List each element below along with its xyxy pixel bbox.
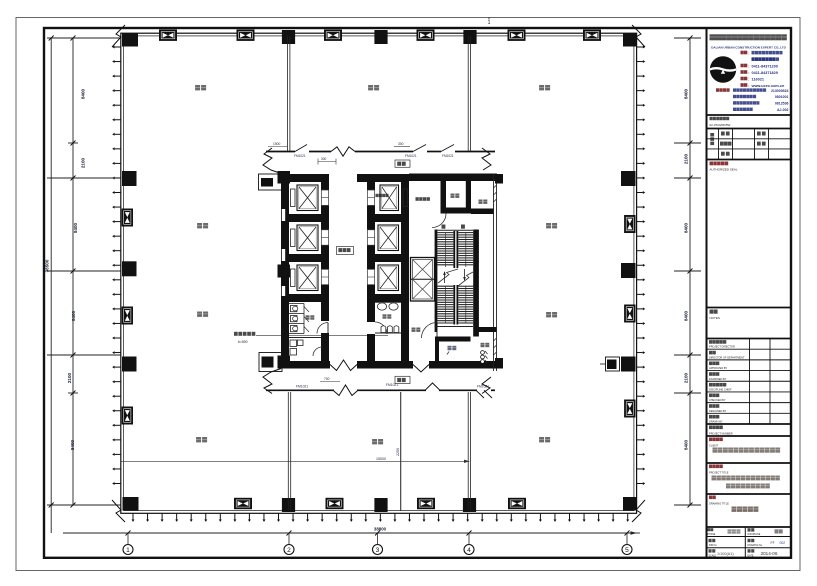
- svg-text:0411-84371200: 0411-84371200: [752, 65, 778, 69]
- svg-text::: :: [748, 65, 749, 69]
- svg-text:DESIGNED BY: DESIGNED BY: [709, 409, 727, 413]
- svg-text:5: 5: [625, 547, 629, 554]
- svg-text:300: 300: [398, 142, 404, 146]
- svg-text:1500: 1500: [273, 142, 281, 146]
- svg-text:116021: 116021: [752, 78, 764, 82]
- svg-text:1/100(A1): 1/100(A1): [717, 552, 734, 556]
- svg-text:DRAWING TITLE: DRAWING TITLE: [709, 501, 729, 505]
- svg-text:PROJECT DIRECTOR: PROJECT DIRECTOR: [709, 345, 735, 349]
- svg-text:38800: 38800: [374, 527, 387, 532]
- svg-text:DISCIPLINE: DISCIPLINE: [748, 534, 761, 536]
- svg-text::: :: [748, 84, 749, 88]
- svg-text:JOB No.: JOB No.: [709, 545, 718, 547]
- svg-text:2100: 2100: [67, 372, 72, 383]
- svg-text:AJ-002: AJ-002: [777, 108, 789, 112]
- svg-text:3: 3: [376, 547, 380, 554]
- svg-text:8400: 8400: [684, 439, 689, 450]
- svg-text:8400: 8400: [684, 222, 689, 233]
- svg-text:SCALE: SCALE: [709, 554, 717, 557]
- svg-text:FM1021: FM1021: [442, 154, 454, 158]
- svg-text:0801001: 0801001: [775, 95, 789, 99]
- svg-text::: :: [748, 71, 749, 75]
- svg-text:DRAWN BY: DRAWN BY: [709, 420, 723, 424]
- svg-text:CHECKED BY: CHECKED BY: [709, 398, 726, 402]
- svg-text:DISCIPLINE CHIEF: DISCIPLINE CHIEF: [709, 387, 732, 391]
- svg-text:2014-06: 2014-06: [761, 551, 778, 556]
- svg-text:2: 2: [287, 547, 291, 554]
- svg-text:DATE: DATE: [748, 554, 754, 557]
- svg-text:DALIAN URBAN CONSTRUCTION EXPE: DALIAN URBAN CONSTRUCTION EXPERT CO.,LTD: [711, 45, 786, 49]
- svg-text:15000: 15000: [376, 457, 386, 461]
- svg-text:CLIENT: CLIENT: [709, 443, 719, 447]
- svg-text:300: 300: [321, 157, 327, 161]
- svg-text:8400: 8400: [684, 310, 689, 321]
- svg-text:FF: FF: [771, 541, 775, 545]
- svg-text:1: 1: [488, 20, 491, 26]
- svg-text:PHASE: PHASE: [708, 533, 716, 536]
- svg-text:8400: 8400: [684, 88, 689, 99]
- svg-text:www.ucec.com.cn: www.ucec.com.cn: [751, 84, 785, 88]
- svg-text::: :: [748, 78, 749, 82]
- svg-text:FM1021: FM1021: [405, 154, 417, 158]
- svg-text:2250: 2250: [396, 448, 400, 456]
- svg-text:8400: 8400: [81, 88, 86, 99]
- svg-text:EXAMINED BY: EXAMINED BY: [709, 377, 727, 381]
- svg-text:0812536: 0812536: [775, 102, 789, 106]
- svg-text:8400: 8400: [70, 439, 75, 450]
- svg-text:DIRECTOR OF DEPARTMENT: DIRECTOR OF DEPARTMENT: [709, 355, 745, 359]
- svg-text:213000524: 213000524: [771, 89, 789, 93]
- svg-text:0411-84371829: 0411-84371829: [752, 71, 778, 75]
- svg-text:FM1021: FM1021: [477, 384, 489, 388]
- svg-text:8400: 8400: [73, 222, 78, 233]
- svg-text:AUTHORIZED SEAL: AUTHORIZED SEAL: [710, 168, 738, 172]
- svg-text::: :: [748, 52, 749, 56]
- svg-text:b=500: b=500: [238, 340, 248, 344]
- svg-text:2100: 2100: [81, 157, 86, 168]
- svg-text:700: 700: [324, 377, 330, 381]
- svg-text:1: 1: [126, 547, 130, 554]
- svg-text:FM1021: FM1021: [294, 154, 306, 158]
- svg-text:8400: 8400: [71, 310, 76, 321]
- svg-text:02-0704/08 BW: 02-0704/08 BW: [710, 123, 731, 127]
- svg-text:2100: 2100: [684, 372, 689, 383]
- svg-text:4: 4: [467, 547, 471, 554]
- svg-text:DRAWING No.: DRAWING No.: [748, 544, 764, 547]
- svg-text:2100: 2100: [684, 153, 689, 164]
- svg-text:38500: 38500: [44, 259, 49, 272]
- svg-text:PROJECT TITLE: PROJECT TITLE: [709, 470, 729, 474]
- svg-text:FM1021: FM1021: [296, 384, 308, 388]
- svg-text:PROJECT NUMBER: PROJECT NUMBER: [709, 431, 733, 435]
- svg-text:NOTES: NOTES: [710, 316, 720, 320]
- svg-text:APPROVED BY: APPROVED BY: [709, 366, 728, 370]
- svg-text:002: 002: [780, 541, 786, 545]
